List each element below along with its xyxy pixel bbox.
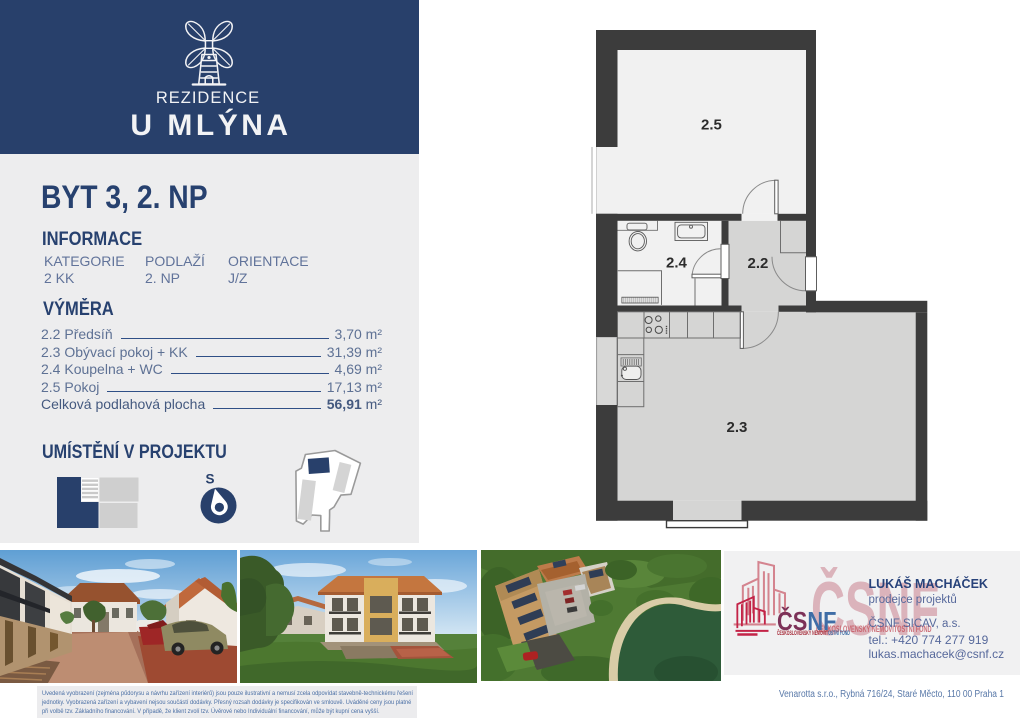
svg-text:2.4: 2.4 (666, 255, 688, 272)
svg-text:2.5: 2.5 (701, 117, 722, 134)
svg-text:2.2: 2.2 (748, 255, 769, 272)
svg-text:2.3: 2.3 (727, 419, 748, 436)
svg-text:S: S (206, 472, 215, 487)
